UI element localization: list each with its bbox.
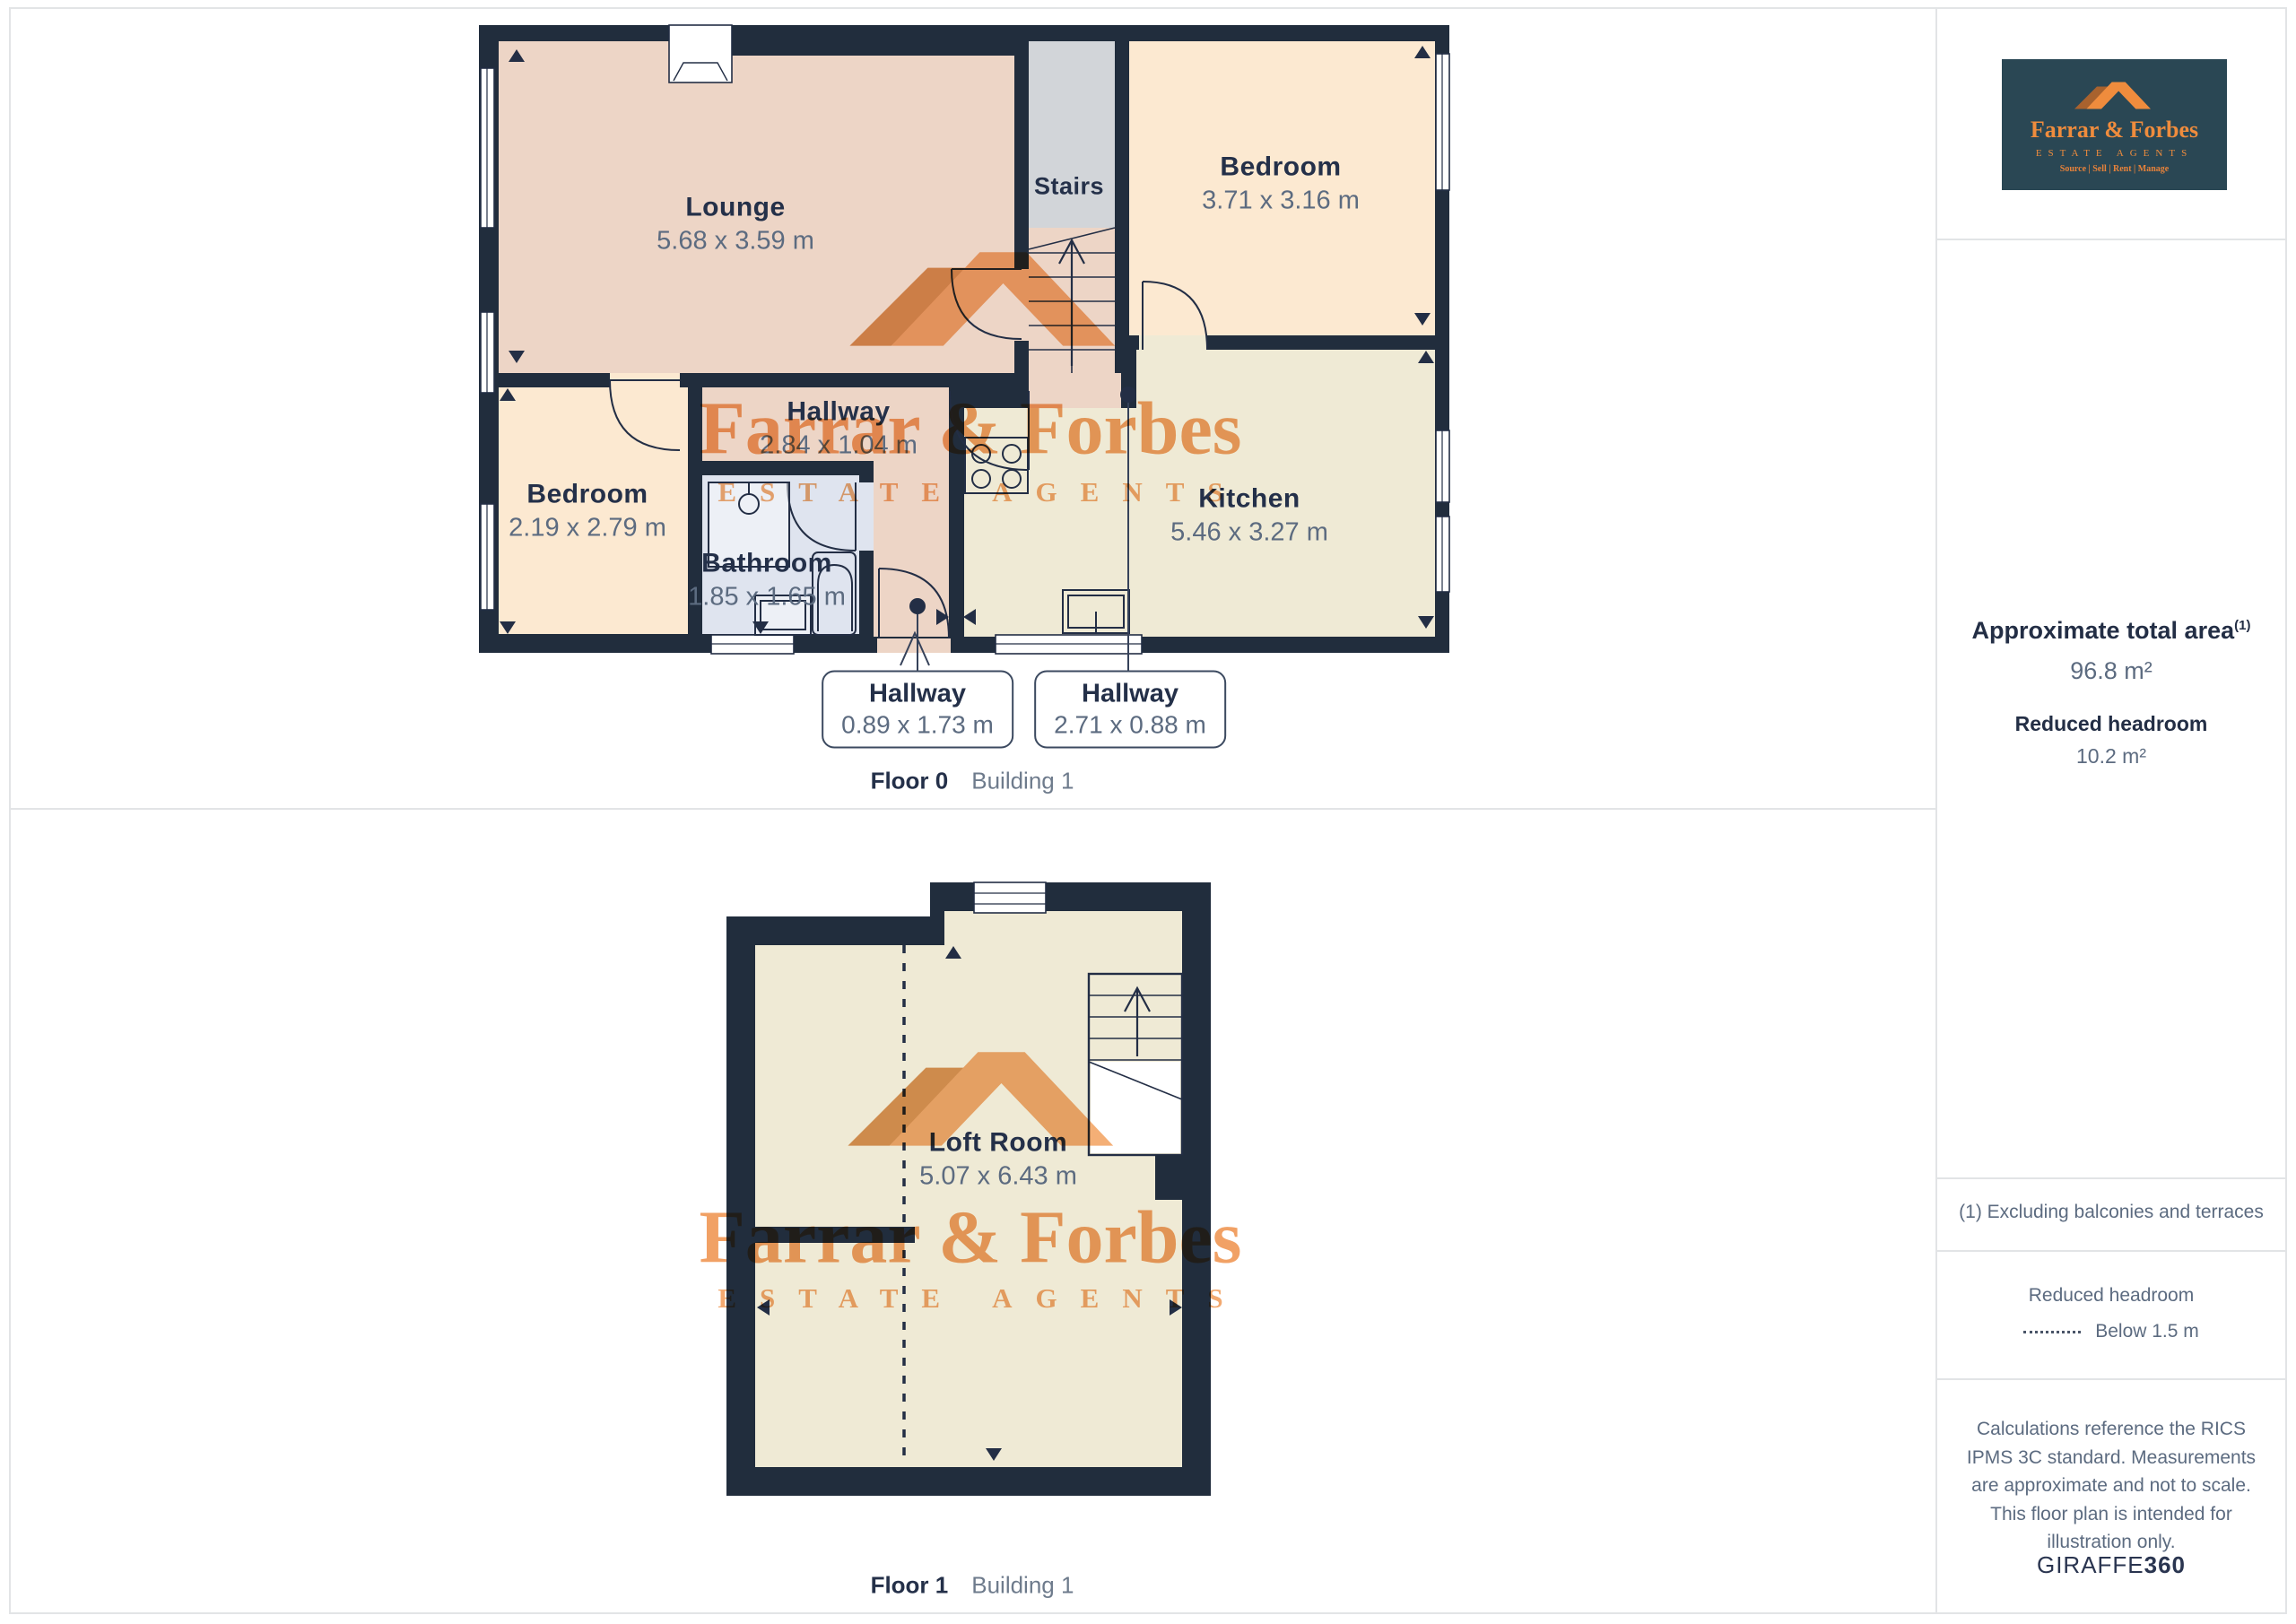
roof-icon: [2070, 75, 2160, 111]
caption-building-label: Building 1: [971, 768, 1074, 795]
reduced-headroom-title: Reduced headroom: [1935, 712, 2287, 736]
room-name: Loft Room: [919, 1128, 1077, 1159]
room-dims: 1.85 x 1.65 m: [688, 583, 846, 612]
reduced-headroom-value: 10.2 m²: [1935, 744, 2287, 769]
callout-hallway-1: Hallway 0.89 x 1.73 m: [822, 671, 1013, 749]
caption-floor-label: Floor 1: [871, 1572, 949, 1599]
room-dims: 2.84 x 1.04 m: [760, 431, 918, 461]
giraffe-360: 360: [2144, 1551, 2186, 1578]
floorplan-page: Lounge 5.68 x 3.59 m Bedroom 3.71 x 3.16…: [0, 0, 2296, 1624]
giraffe360-logo: GIRAFFE360: [1935, 1551, 2287, 1579]
caption-floor0: Floor 0Building 1: [871, 768, 1074, 795]
callout-dims: 2.71 x 0.88 m: [1054, 711, 1206, 740]
room-dims: 2.19 x 2.79 m: [509, 514, 666, 543]
room-label-lounge: Lounge 5.68 x 3.59 m: [657, 193, 814, 256]
dotted-line-sample: [2023, 1331, 2081, 1333]
total-area-footnote-marker: (1): [2234, 618, 2250, 633]
room-label-kitchen: Kitchen 5.46 x 3.27 m: [1170, 484, 1328, 548]
room-label-stairs: Stairs: [1034, 173, 1104, 201]
room-name: Bathroom: [688, 549, 846, 579]
room-label-bedroom-right: Bedroom 3.71 x 3.16 m: [1202, 152, 1360, 216]
legend-value: Below 1.5 m: [2095, 1321, 2199, 1342]
room-dims: 5.07 x 6.43 m: [919, 1162, 1077, 1192]
room-label-loft: Loft Room 5.07 x 6.43 m: [919, 1128, 1077, 1192]
room-label-hallway: Hallway 2.84 x 1.04 m: [760, 397, 918, 461]
room-name: Bedroom: [509, 480, 666, 510]
callout-name: Hallway: [1054, 680, 1206, 709]
legend-title: Reduced headroom: [1935, 1285, 2287, 1307]
room-name: Lounge: [657, 193, 814, 223]
room-name: Stairs: [1034, 173, 1104, 201]
floor0-plan: [479, 25, 1449, 671]
room-label-bathroom: Bathroom 1.85 x 1.65 m: [688, 549, 846, 612]
callout-name: Hallway: [841, 680, 994, 709]
caption-building-label: Building 1: [971, 1572, 1074, 1599]
agency-logo: Farrar & Forbes ESTATE AGENTS Source | S…: [2002, 59, 2227, 190]
caption-floor1: Floor 1Building 1: [871, 1572, 1074, 1600]
agency-tagline: ESTATE AGENTS: [2036, 148, 2193, 159]
total-area-text: Approximate total area: [1972, 617, 2235, 644]
room-name: Bedroom: [1202, 152, 1360, 183]
room-dims: 5.68 x 3.59 m: [657, 227, 814, 256]
total-area-title: Approximate total area(1): [1935, 617, 2287, 645]
room-dims: 3.71 x 3.16 m: [1202, 187, 1360, 216]
legend-row: Below 1.5 m: [1935, 1321, 2287, 1342]
agency-name: Farrar & Forbes: [2031, 117, 2198, 143]
sidebar: Farrar & Forbes ESTATE AGENTS Source | S…: [1935, 7, 2287, 1614]
footnote: (1) Excluding balconies and terraces: [1935, 1202, 2287, 1223]
room-name: Hallway: [760, 397, 918, 428]
giraffe-text: GIRAFFE: [2037, 1551, 2144, 1578]
callout-hallway-2: Hallway 2.71 x 0.88 m: [1034, 671, 1226, 749]
room-dims: 5.46 x 3.27 m: [1170, 518, 1328, 548]
caption-floor-label: Floor 0: [871, 768, 949, 795]
callout-dims: 0.89 x 1.73 m: [841, 711, 994, 740]
room-label-bedroom-left: Bedroom 2.19 x 2.79 m: [509, 480, 666, 543]
disclaimer: Calculations reference the RICS IPMS 3C …: [1963, 1415, 2259, 1557]
agency-services: Source | Sell | Rent | Manage: [2060, 164, 2169, 174]
room-name: Kitchen: [1170, 484, 1328, 515]
total-area-value: 96.8 m²: [1935, 657, 2287, 685]
